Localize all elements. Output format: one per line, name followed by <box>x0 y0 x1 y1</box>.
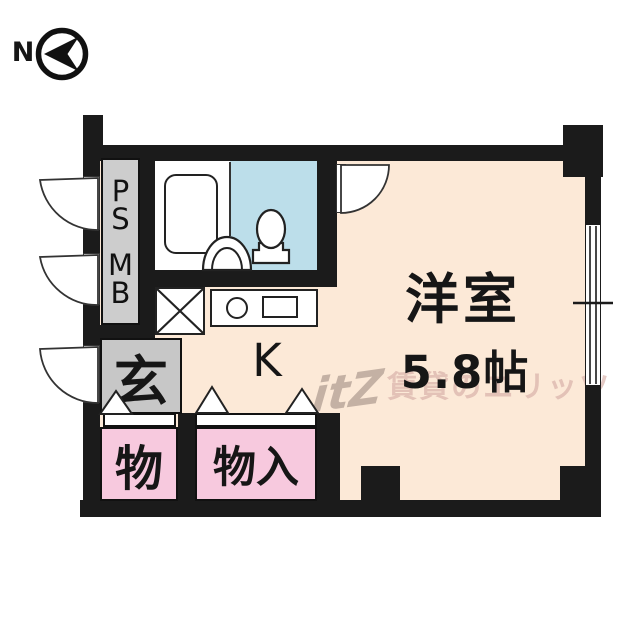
wall-bath-bottom <box>137 270 337 287</box>
wall-storage-right <box>317 413 340 501</box>
main-room-size: 5.8帖 <box>365 342 565 394</box>
entrance-door-leaf <box>83 345 100 403</box>
sliding-door-strip-2 <box>195 413 317 427</box>
sliding-door-strip-1 <box>103 413 176 427</box>
wall-pillar <box>361 466 400 500</box>
entrance-box: 玄 <box>100 338 182 414</box>
main-room-name: 洋室 <box>368 264 558 324</box>
utility-shaft-box: P S M B <box>101 158 140 325</box>
wall-bath-mainroom <box>317 161 337 287</box>
storage-label: 物 <box>115 429 163 499</box>
wall-right-upper <box>585 161 601 224</box>
floor-plan: N itZ賃貸のエリッツ P S M B 玄 物 物入 <box>0 0 640 640</box>
utility-letter-b: B <box>111 279 131 307</box>
closet-box: 物入 <box>195 427 317 501</box>
bathtub <box>164 174 218 254</box>
wall-left-b <box>83 230 100 253</box>
north-arrow-icon <box>33 25 91 83</box>
utility-letter-s: S <box>111 205 129 233</box>
washer-box <box>155 287 205 335</box>
wall-storage-middle <box>178 413 195 501</box>
north-label: N <box>10 36 36 68</box>
utility-door-leaf-1 <box>83 176 100 230</box>
wall-left-c <box>83 305 100 345</box>
utility-letter-m: M <box>108 251 133 279</box>
wall-bottom <box>80 500 601 517</box>
window <box>585 224 601 386</box>
wall-right-lower <box>585 386 601 468</box>
closet-label: 物入 <box>213 433 299 495</box>
wall-top <box>95 145 567 161</box>
wall-left-a <box>83 115 100 176</box>
storage-box: 物 <box>100 427 178 501</box>
utility-door-leaf-2 <box>83 253 100 305</box>
wall-left-d <box>83 403 100 517</box>
entrance-label: 玄 <box>114 337 168 416</box>
kitchen-label: K <box>244 337 290 383</box>
utility-letter-p: P <box>112 177 130 205</box>
sink-circle <box>226 297 248 319</box>
stove-rect <box>262 296 298 318</box>
bathroom-door-leaf <box>336 164 346 213</box>
toilet-floor <box>230 161 317 270</box>
